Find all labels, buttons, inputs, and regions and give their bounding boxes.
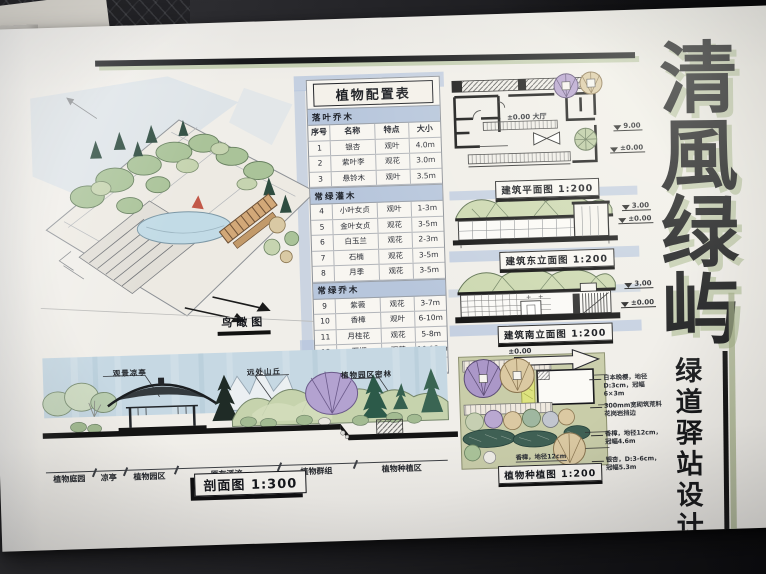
section-callout: 植物园区密林: [341, 368, 392, 381]
zone-label: 植物庭园: [46, 472, 93, 485]
photo-scene: 清風绿屿 绿道驿站设计: [0, 0, 766, 574]
table-cell: 4: [311, 204, 334, 219]
elevation-mark: 3.00: [622, 201, 652, 211]
table-cell: 观花: [378, 233, 413, 249]
main-title-vertical: 清風绿屿: [648, 41, 751, 350]
table-cell: 名称: [331, 124, 376, 140]
table-cell: 6: [312, 235, 335, 250]
table-cell: 5-8m: [415, 326, 446, 341]
subtitle-char: 站: [672, 449, 708, 480]
birdseye-view-drawing: [30, 72, 328, 333]
zone-label: 凉亭: [94, 471, 123, 484]
table-cell: 1-3m: [412, 201, 443, 216]
table-cell: 7: [312, 251, 335, 266]
decorative-top-bar: [95, 52, 635, 66]
section-callout: 观景凉亭: [113, 367, 147, 379]
table-cell: 6-10m: [415, 311, 446, 326]
table-cell: 3.0m: [410, 153, 441, 168]
planting-plan-label: 植物种植图 1:200: [498, 463, 603, 484]
subtitle-vertical: 绿道驿站设计: [671, 356, 709, 542]
subtitle-char: 绿: [671, 356, 707, 387]
table-cell: 紫薇: [336, 297, 381, 313]
elevation-mark: ±0.00: [618, 214, 653, 224]
table-cell: 悬铃木: [332, 170, 377, 186]
plant-config-table: 植物配置表 落叶乔木序号名称特点大小1银杏观叶4.0m2紫叶李观花3.0m3悬铃…: [306, 76, 449, 378]
section-drawing: [40, 341, 459, 476]
table-cell: 大小: [409, 122, 440, 137]
elevation-mark: ±0.00: [621, 298, 656, 308]
subtitle-char: 道: [671, 387, 707, 418]
title-char: 绿: [650, 195, 751, 273]
building-floor-plan-drawing: [448, 73, 603, 184]
section-label: 剖面图 1:300: [194, 470, 307, 497]
table-cell: 金叶女贞: [333, 218, 378, 234]
table-cell: 观叶: [375, 138, 410, 154]
table-cell: 1: [309, 141, 332, 156]
table-cell: 观叶: [376, 169, 411, 185]
table-cell: 小叶女贞: [333, 203, 378, 219]
elevation-mark: 3.00: [624, 279, 654, 289]
elevation-mark: 9.00: [613, 121, 643, 131]
table-cell: 月桂花: [337, 328, 382, 344]
table-cell: 特点: [375, 123, 410, 139]
presentation-board: 清風绿屿 绿道驿站设计: [0, 5, 766, 552]
table-cell: 紫叶李: [331, 155, 376, 171]
entry-door: [521, 301, 541, 316]
plan-interior-note: ±0.00 大厅: [507, 111, 547, 122]
table-cell: 3-5m: [412, 216, 443, 231]
title-char: 屿: [650, 272, 751, 350]
table-cell: 序号: [308, 125, 331, 140]
table-cell: 3.5m: [411, 168, 442, 183]
birdseye-label: 鸟瞰图: [217, 313, 271, 336]
table-cell: 11: [315, 330, 338, 345]
title-char: 清: [648, 41, 749, 119]
zone-label: 植物园区: [125, 469, 174, 483]
table-cell: 5: [311, 220, 334, 235]
table-cell: 观花: [381, 327, 416, 343]
table-cell: 3-5m: [414, 263, 445, 278]
table-cell: 观花: [380, 296, 415, 312]
table-cell: 9: [314, 299, 337, 314]
table-cell: 观叶: [377, 202, 412, 218]
subtitle-char: 设: [672, 480, 708, 511]
ground-line-lower: [349, 431, 458, 440]
zone-label: 植物种植区: [355, 461, 448, 476]
table-cell: 白玉兰: [334, 234, 379, 250]
subtitle-char: 驿: [671, 418, 707, 449]
table-cell: 银杏: [331, 139, 376, 155]
planting-note: 300mm宽砌筑荒料花岗岩挡边: [604, 401, 662, 419]
table-cell: 石楠: [334, 249, 379, 265]
bowtie-symbol: [534, 132, 547, 144]
plant-table-grid: 落叶乔木序号名称特点大小1银杏观叶4.0m2紫叶李观花3.0m3悬铃木观叶3.5…: [308, 105, 448, 377]
table-cell: 观叶: [381, 312, 416, 328]
table-cell: 8: [313, 266, 336, 281]
planting-note: 日本晚樱，地径D:3cm，冠幅6×3m: [603, 373, 662, 399]
table-cell: 观花: [378, 217, 413, 233]
table-cell: 观花: [379, 264, 414, 280]
building-elevation-south-drawing: [454, 260, 621, 325]
planting-level-mark: ±0.00: [508, 347, 531, 356]
table-cell: 2-3m: [413, 232, 444, 247]
elevation-a-label: 建筑东立面图 1:200: [499, 248, 614, 270]
table-cell: 3: [310, 172, 333, 187]
table-cell: 月季: [335, 265, 380, 281]
table-cell: 香樟: [336, 313, 381, 329]
elevation-b-label: 建筑南立面图 1:200: [498, 322, 613, 344]
stone-wall-hatch: [376, 419, 402, 434]
section-callout: 远处山丘: [247, 366, 281, 378]
table-cell: 3-7m: [415, 295, 446, 310]
table-cell: 观花: [379, 248, 414, 264]
table-cell: 观花: [376, 154, 411, 170]
table-cell: 3-5m: [413, 247, 444, 262]
table-cell: 4.0m: [410, 137, 441, 152]
plant-table-title: 植物配置表: [313, 80, 434, 107]
planting-bottom-note: 香樟，地径12cm: [516, 451, 567, 463]
floor-plan-label: 建筑平面图 1:200: [495, 178, 600, 199]
table-cell: 10: [314, 314, 337, 329]
title-char: 風: [649, 118, 750, 196]
planting-note: 银杏，D:3-6cm，冠幅5.3m: [606, 455, 664, 473]
elevation-mark: ±0.00: [610, 143, 645, 153]
planting-note: 香樟，地径12cm，冠幅4.6m: [605, 429, 663, 447]
table-cell: 2: [309, 156, 332, 171]
